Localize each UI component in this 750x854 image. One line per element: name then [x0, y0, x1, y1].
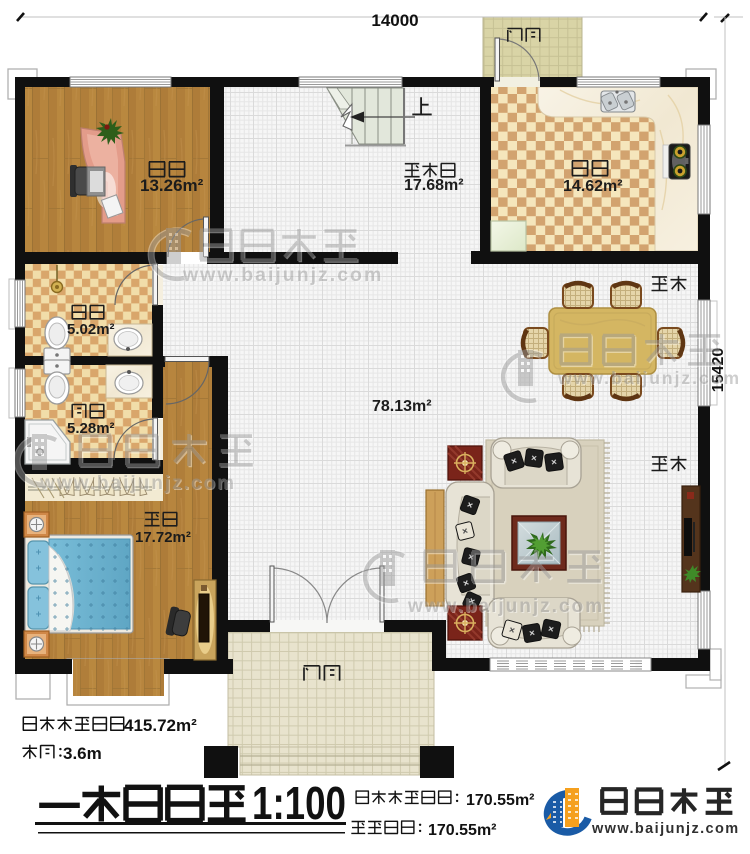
svg-text:17.72m²: 17.72m² [135, 529, 191, 546]
svg-text:www.baijunjz.com: www.baijunjz.com [407, 596, 604, 617]
svg-text:5.28m²: 5.28m² [67, 420, 115, 437]
svg-text:3.6m: 3.6m [63, 744, 102, 763]
svg-text:14000: 14000 [371, 11, 418, 30]
svg-text:17.68m²: 17.68m² [404, 177, 464, 194]
svg-text:www.baijunjz.com: www.baijunjz.com [557, 368, 741, 388]
svg-text:www.baijunjz.com: www.baijunjz.com [39, 473, 236, 494]
svg-text:www.baijunjz.com: www.baijunjz.com [182, 264, 383, 286]
svg-text:14.62m²: 14.62m² [563, 178, 623, 195]
svg-text:1:100: 1:100 [252, 777, 346, 829]
svg-text:5.02m²: 5.02m² [67, 321, 115, 338]
svg-text:78.13m²: 78.13m² [372, 398, 432, 415]
svg-text:415.72m²: 415.72m² [124, 716, 197, 735]
svg-text:170.55m²: 170.55m² [466, 792, 535, 809]
svg-text:13.26m²: 13.26m² [140, 176, 204, 195]
svg-text:170.55m²: 170.55m² [428, 822, 497, 839]
svg-text:www.baijunjz.com: www.baijunjz.com [591, 821, 740, 837]
